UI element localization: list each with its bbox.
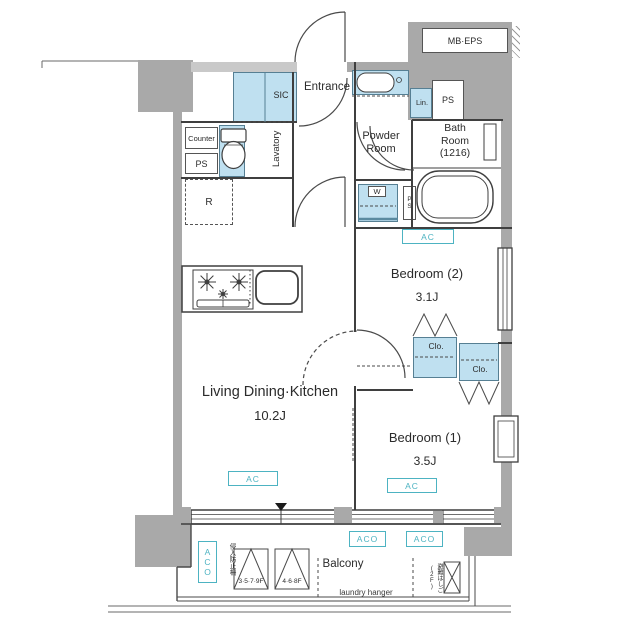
escape-ladder-icon (444, 562, 460, 593)
aco-label: ACO (357, 534, 378, 544)
bedroom2-name: Bedroom (2) (367, 266, 487, 282)
plan-linework (0, 0, 640, 639)
ac-box-bedroom1: AC (387, 478, 437, 493)
aco-label: ACO (203, 547, 213, 577)
floor-panel-b-label: 4·6·8F (275, 578, 309, 586)
aco-box-balcony-left: ACO (198, 541, 217, 583)
ac-label: AC (421, 232, 435, 242)
bedroom2-door-arc (357, 330, 405, 378)
ldk-door-arc (295, 177, 345, 227)
bedroom2-size: 3.1J (367, 290, 487, 304)
bedroom1-window (494, 416, 518, 462)
entrance-label: Entrance (299, 81, 355, 95)
bedroom2-window (498, 248, 512, 330)
aco-box-balcony-center: ACO (349, 531, 386, 547)
ac-label: AC (246, 474, 260, 484)
washbasin-icon (357, 73, 402, 92)
balcony-windows (181, 507, 502, 525)
bath-room-label: Bath Room (1216) (426, 122, 484, 160)
floor-panel-a-label: 3·5·7·9F (234, 578, 268, 586)
toilet-icon (221, 129, 246, 169)
floor-plan: SIC Lin. Clo. Clo. MB·EPS PS Counter PS … (0, 0, 640, 639)
kitchen-counter-icon (182, 266, 302, 312)
powder-room-label: Powder Room (352, 130, 410, 156)
folding-doors (413, 314, 499, 404)
bedroom1-size: 3.5J (365, 454, 485, 468)
laundry-hanger-label: laundry hanger (328, 588, 404, 598)
ac-box-bedroom2: AC (402, 229, 454, 244)
ac-label: AC (405, 481, 419, 491)
lavatory-label: Lavatory (271, 120, 287, 178)
escape-ladder-label: 避難はしご(2F) (429, 555, 442, 601)
ac-box-ldk: AC (228, 471, 278, 486)
intrusion-fence-label: 侵入防止柵 (224, 527, 235, 591)
bedroom1-name: Bedroom (1) (365, 430, 485, 446)
balcony-label: Balcony (312, 558, 374, 572)
ldk-size: 10.2J (175, 408, 365, 424)
entrance-door-arc (295, 12, 345, 62)
aco-label: ACO (414, 534, 435, 544)
aco-box-balcony-right: ACO (406, 531, 443, 547)
ldk-name: Living Dining·Kitchen (175, 384, 365, 401)
bedroom2-door-arc-dashed (303, 331, 357, 385)
